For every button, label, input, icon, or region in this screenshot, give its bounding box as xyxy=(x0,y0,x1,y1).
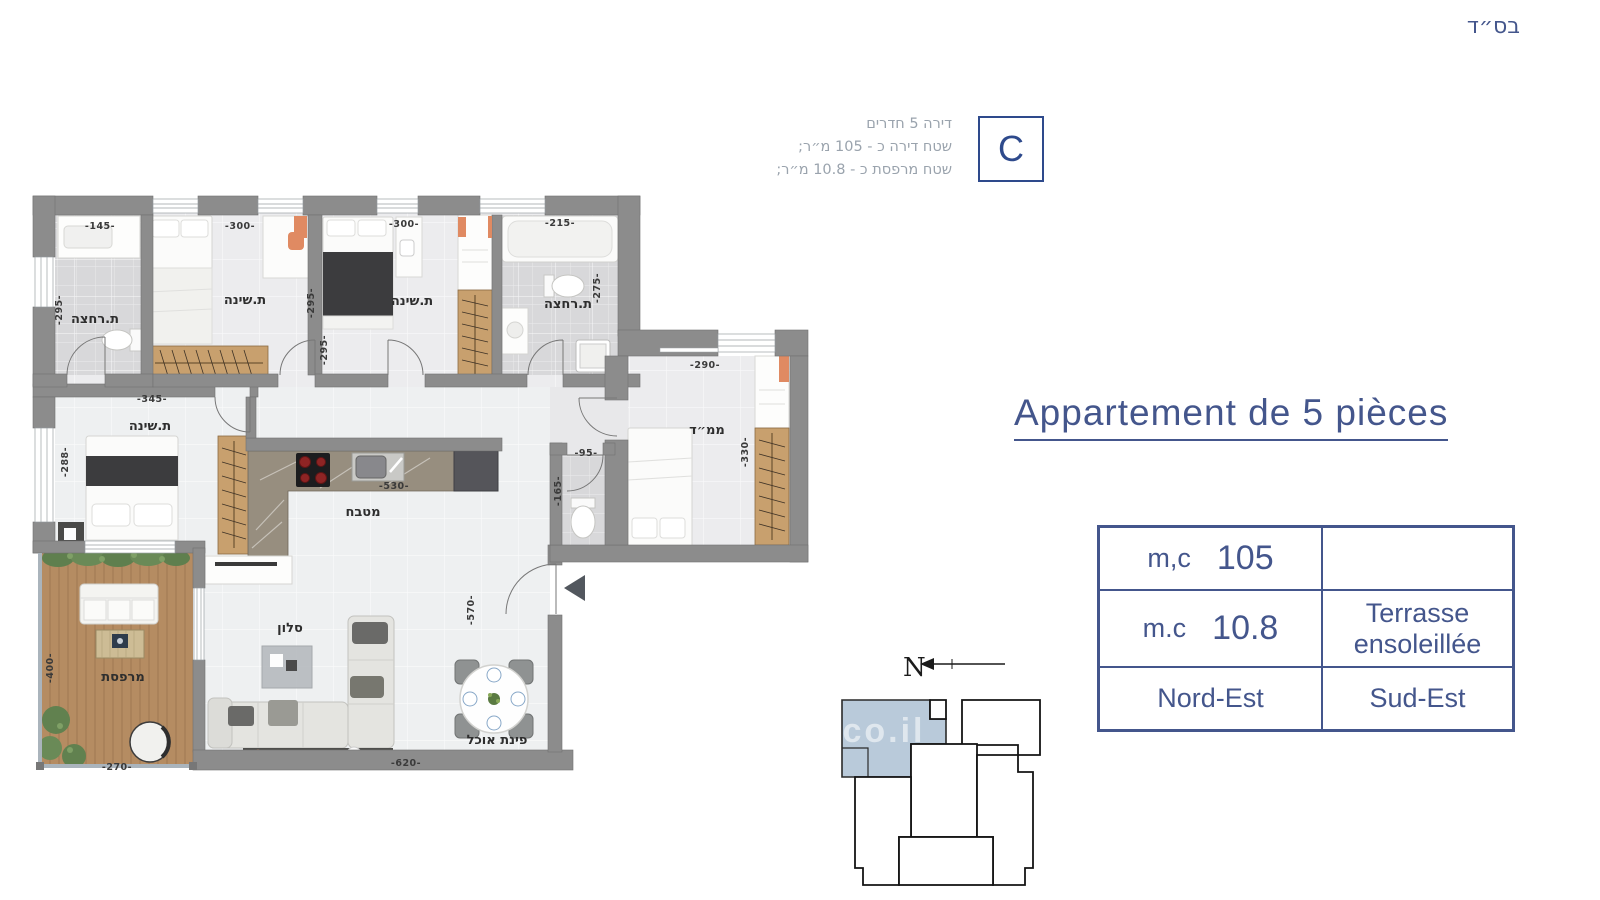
unit-letter-badge: C xyxy=(978,116,1044,182)
north-compass: N xyxy=(903,653,1005,683)
page-title: Appartement de 5 pièces xyxy=(1014,392,1448,441)
room-label: סלון xyxy=(277,621,303,636)
master-wardrobe xyxy=(218,436,250,554)
unit-info-line: שטח מרפסת כ - 10.8 מ״ר; xyxy=(776,159,952,182)
spec-terrace-cell: m.c 10.8 xyxy=(1100,591,1323,668)
spec-terrace-desc: Terrasse ensoleillée xyxy=(1323,591,1512,668)
cooktop xyxy=(296,453,330,487)
unit-letter: C xyxy=(998,128,1024,170)
unit-info-line: דירה 5 חדרים xyxy=(776,113,952,136)
room-label: מטבח xyxy=(345,505,380,520)
room-label: ת.רחצה xyxy=(544,297,592,312)
dimension-label: -295- xyxy=(306,288,317,318)
dimension-label: -215- xyxy=(545,218,575,229)
dimension-label: -300- xyxy=(389,219,419,230)
spec-table: m,c 105 m.c 10.8 Terrasse ensoleillée No… xyxy=(1097,525,1515,732)
bathroom2-toilet xyxy=(544,275,584,297)
dimension-label: -295- xyxy=(54,295,65,325)
wc-toilet xyxy=(571,498,595,538)
spec-area-cell: m,c 105 xyxy=(1100,528,1323,591)
bedroom2-bed xyxy=(323,217,393,329)
bedroom2-wardrobe xyxy=(458,290,492,380)
window xyxy=(85,541,175,553)
window xyxy=(194,588,204,660)
window xyxy=(258,199,303,213)
dimension-label: -290- xyxy=(690,360,720,371)
window xyxy=(35,257,53,307)
dining-set xyxy=(455,660,533,738)
room-label: פינת אוכל xyxy=(467,733,528,748)
mamad-cabinet xyxy=(755,356,789,428)
master-bed xyxy=(86,436,178,548)
key-plan: N .co.il xyxy=(820,630,1050,898)
room-label: ת.שינה xyxy=(224,293,266,308)
spec-area-value: 105 xyxy=(1217,543,1274,574)
room-label: מרפסת xyxy=(101,670,145,685)
dimension-label: -330- xyxy=(740,437,751,467)
spec-terrace-label: m.c xyxy=(1143,613,1187,644)
floor-plan: ת.רחצהת.שינהת.שינהת.רחצהת.שינהממ״דמטבחסל… xyxy=(20,185,820,785)
window xyxy=(480,199,545,213)
spec-orientation-right: Sud-Est xyxy=(1323,668,1512,729)
dimension-label: -400- xyxy=(45,653,56,683)
living-rug xyxy=(262,646,312,688)
spec-empty-cell xyxy=(1323,528,1512,591)
dimension-label: -300- xyxy=(225,221,255,232)
spec-orientation-left: Nord-Est xyxy=(1100,668,1323,729)
dimension-label: -570- xyxy=(466,595,477,625)
dimension-label: -275- xyxy=(592,273,603,303)
kitchen-sideboard xyxy=(205,556,292,584)
mamad-wardrobe xyxy=(755,428,789,545)
unit-info-block: דירה 5 חדרים שטח דירה כ - 105 מ״ר; שטח מ… xyxy=(776,113,952,182)
floorplan-page: בס״ד דירה 5 חדרים שטח דירה כ - 105 מ״ר; … xyxy=(0,0,1600,900)
entry-arrow xyxy=(564,575,585,601)
bedroom1-bed xyxy=(148,216,212,344)
balcony-table xyxy=(130,722,170,762)
balcony-rug xyxy=(96,630,144,658)
dimension-label: -145- xyxy=(85,221,115,232)
kitchen-sink xyxy=(352,453,404,481)
spec-area-label: m,c xyxy=(1147,543,1191,574)
dimension-label: -270- xyxy=(102,762,132,773)
window xyxy=(35,428,53,522)
dimension-label: -530- xyxy=(379,481,409,492)
unit-info-line: שטח דירה כ - 105 מ״ר; xyxy=(776,136,952,159)
bathroom1-toilet xyxy=(102,329,142,351)
dimension-label: -620- xyxy=(391,758,421,769)
bsd-text: בס״ד xyxy=(1467,14,1520,39)
dimension-label: -95- xyxy=(574,448,597,459)
bedroom2-cabinet xyxy=(458,215,492,290)
dimension-label: -345- xyxy=(137,394,167,405)
mamad-bed xyxy=(628,428,692,548)
spec-terrace-value: 10.8 xyxy=(1212,613,1278,644)
window xyxy=(153,199,198,213)
dimension-label: -165- xyxy=(553,476,564,506)
bathroom2-vanity xyxy=(502,308,528,354)
window xyxy=(377,199,418,213)
room-label: ת.שינה xyxy=(391,294,433,309)
dimension-label: -295- xyxy=(319,335,330,365)
north-label: N xyxy=(903,653,926,683)
dimension-label: -288- xyxy=(60,447,71,477)
title-block: Appartement de 5 pièces xyxy=(1014,392,1534,441)
room-label: ת.שינה xyxy=(129,419,171,434)
balcony-sofa xyxy=(80,584,158,624)
room-label: ממ״ד xyxy=(689,423,725,438)
room-label: ת.רחצה xyxy=(71,312,119,327)
watermark: .co.il xyxy=(830,712,925,750)
